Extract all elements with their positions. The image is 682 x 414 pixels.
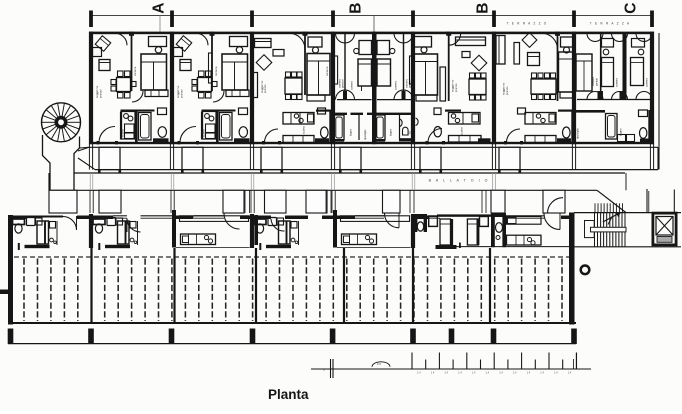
svg-text:T E R R A Z Z O: T E R R A Z Z O bbox=[507, 22, 548, 26]
svg-text:1.4: 1.4 bbox=[540, 371, 544, 375]
svg-text:cucina: cucina bbox=[121, 129, 125, 137]
svg-text:1.4: 1.4 bbox=[431, 371, 435, 375]
svg-text:0.5: 0.5 bbox=[377, 362, 382, 366]
svg-text:camera: camera bbox=[133, 66, 137, 76]
svg-text:camera: camera bbox=[394, 81, 398, 90]
svg-text:pranzo: pranzo bbox=[263, 84, 267, 93]
svg-text:T E R R A Z Z A: T E R R A Z Z A bbox=[590, 22, 630, 26]
svg-text:1.4: 1.4 bbox=[485, 371, 489, 375]
svg-text:camera: camera bbox=[325, 66, 329, 76]
svg-text:1.4: 1.4 bbox=[444, 371, 448, 375]
svg-text:1.4: 1.4 bbox=[472, 371, 476, 375]
svg-text:bagno: bagno bbox=[389, 128, 393, 136]
svg-text:pranzo: pranzo bbox=[99, 89, 103, 98]
svg-text:1.4: 1.4 bbox=[527, 371, 531, 375]
svg-text:camera: camera bbox=[615, 78, 619, 87]
svg-text:camera: camera bbox=[350, 81, 354, 90]
svg-text:B: B bbox=[348, 3, 365, 14]
svg-text:pranzo: pranzo bbox=[180, 89, 184, 98]
svg-text:cucina: cucina bbox=[302, 126, 306, 134]
svg-text:cucina: cucina bbox=[460, 127, 464, 135]
svg-text:1.4: 1.4 bbox=[499, 371, 503, 375]
svg-text:1.4: 1.4 bbox=[513, 371, 517, 375]
svg-text:1.4: 1.4 bbox=[417, 371, 421, 375]
svg-text:1.4: 1.4 bbox=[554, 371, 558, 375]
svg-text:ripostiglio: ripostiglio bbox=[364, 129, 367, 140]
svg-text:Planta: Planta bbox=[268, 387, 309, 402]
svg-text:pranzo: pranzo bbox=[505, 86, 509, 95]
svg-text:genitori: genitori bbox=[341, 79, 345, 88]
svg-text:ripostiglio: ripostiglio bbox=[576, 127, 580, 139]
svg-text:bagno: bagno bbox=[349, 128, 353, 136]
svg-text:1.4: 1.4 bbox=[568, 371, 572, 375]
svg-text:camera: camera bbox=[214, 66, 218, 76]
svg-text:C: C bbox=[623, 3, 640, 14]
svg-text:cucina: cucina bbox=[202, 129, 206, 137]
svg-text:camera: camera bbox=[645, 78, 649, 87]
svg-text:genitori: genitori bbox=[595, 78, 598, 86]
svg-text:1.4: 1.4 bbox=[458, 371, 462, 375]
svg-text:pranzo: pranzo bbox=[454, 83, 458, 92]
svg-text:A: A bbox=[151, 3, 168, 14]
svg-text:B A L L A T O I O: B A L L A T O I O bbox=[429, 179, 490, 183]
svg-text:B: B bbox=[475, 3, 492, 14]
